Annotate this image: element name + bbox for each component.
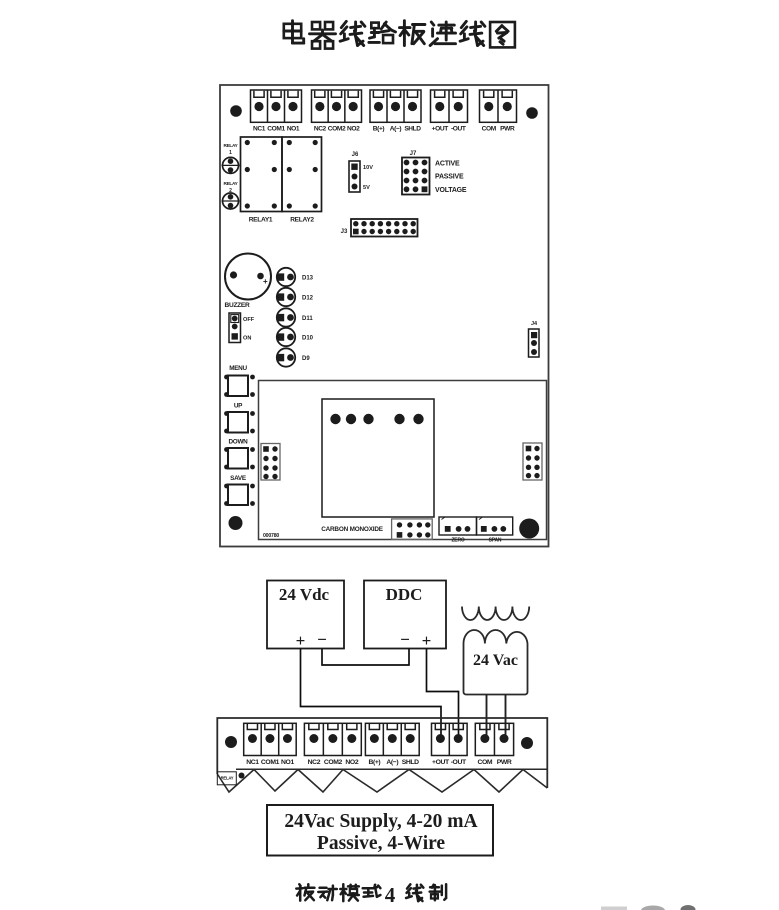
svg-text:B(+): B(+) bbox=[373, 126, 385, 133]
svg-text:NO2: NO2 bbox=[345, 759, 358, 766]
svg-text:RELAY2: RELAY2 bbox=[290, 217, 314, 224]
svg-text:SPAN: SPAN bbox=[489, 538, 502, 544]
svg-text:+OUT: +OUT bbox=[432, 126, 449, 133]
svg-text:D12: D12 bbox=[302, 296, 314, 302]
svg-text:B(+): B(+) bbox=[368, 759, 380, 766]
svg-text:24 Vac: 24 Vac bbox=[473, 652, 518, 669]
svg-text:Passive, 4-Wire: Passive, 4-Wire bbox=[317, 833, 446, 854]
svg-text:D13: D13 bbox=[302, 276, 314, 282]
svg-text:ON: ON bbox=[243, 336, 251, 342]
svg-text:−: − bbox=[400, 630, 410, 649]
svg-text:OFF: OFF bbox=[243, 317, 255, 323]
svg-text:MENU: MENU bbox=[229, 365, 247, 372]
svg-text:J6: J6 bbox=[352, 152, 359, 158]
svg-text:UP: UP bbox=[234, 403, 243, 410]
svg-text:PASSIVE: PASSIVE bbox=[435, 174, 464, 181]
svg-text:-OUT: -OUT bbox=[451, 759, 467, 766]
svg-text:PWR: PWR bbox=[497, 759, 512, 766]
svg-text:VOLTAGE: VOLTAGE bbox=[435, 187, 467, 194]
svg-text:+: + bbox=[296, 631, 306, 650]
svg-text:1: 1 bbox=[229, 150, 232, 156]
svg-text:COM1: COM1 bbox=[267, 126, 285, 133]
svg-text:SHLD: SHLD bbox=[404, 126, 421, 133]
svg-text:BUZZER: BUZZER bbox=[225, 302, 250, 309]
svg-text:−: − bbox=[317, 630, 327, 649]
svg-text:NC1: NC1 bbox=[253, 126, 266, 133]
svg-text:COM2: COM2 bbox=[328, 126, 346, 133]
svg-text:NO1: NO1 bbox=[281, 759, 294, 766]
svg-text:COM: COM bbox=[478, 759, 493, 766]
svg-text:NO2: NO2 bbox=[347, 126, 360, 133]
svg-text:A(−): A(−) bbox=[390, 126, 402, 133]
svg-text:-OUT: -OUT bbox=[451, 126, 466, 133]
svg-text:000780: 000780 bbox=[263, 533, 279, 539]
svg-text:+OUT: +OUT bbox=[432, 759, 450, 766]
svg-text:NO1: NO1 bbox=[287, 126, 300, 133]
svg-text:24 Vdc: 24 Vdc bbox=[279, 585, 330, 604]
svg-text:+: + bbox=[263, 277, 268, 286]
svg-text:RELAY1: RELAY1 bbox=[249, 217, 273, 224]
svg-text:J4: J4 bbox=[531, 321, 538, 327]
svg-text:J3: J3 bbox=[341, 229, 348, 235]
svg-text:J7: J7 bbox=[410, 151, 417, 157]
svg-text:COM2: COM2 bbox=[324, 759, 343, 766]
svg-text:5V: 5V bbox=[363, 185, 370, 191]
svg-text:D9: D9 bbox=[302, 356, 310, 362]
svg-text:SHLD: SHLD bbox=[402, 759, 419, 766]
svg-text:4: 4 bbox=[385, 883, 396, 907]
svg-text:ACTIVE: ACTIVE bbox=[435, 161, 460, 168]
svg-text:NC2: NC2 bbox=[308, 759, 321, 766]
svg-text:10V: 10V bbox=[363, 165, 373, 171]
svg-text:A(−): A(−) bbox=[386, 759, 398, 766]
svg-text:+: + bbox=[422, 631, 432, 650]
svg-text:RELAY: RELAY bbox=[224, 181, 239, 186]
svg-text:PWR: PWR bbox=[500, 126, 515, 133]
svg-text:CARBON MONOXIDE: CARBON MONOXIDE bbox=[321, 526, 384, 533]
svg-text:RELAY: RELAY bbox=[224, 143, 239, 148]
svg-text:NC1: NC1 bbox=[246, 759, 259, 766]
svg-text:DDC: DDC bbox=[386, 585, 423, 604]
svg-text:RELAY: RELAY bbox=[221, 776, 234, 781]
svg-text:SAVE: SAVE bbox=[230, 475, 247, 482]
svg-text:ZERO: ZERO bbox=[451, 538, 464, 544]
svg-text:D10: D10 bbox=[302, 336, 314, 342]
svg-text:24Vac Supply, 4-20 mA: 24Vac Supply, 4-20 mA bbox=[284, 811, 477, 832]
svg-text:NC2: NC2 bbox=[314, 126, 327, 133]
svg-text:D11: D11 bbox=[302, 316, 313, 322]
svg-text:COM1: COM1 bbox=[261, 759, 280, 766]
svg-text:COM: COM bbox=[482, 126, 497, 133]
svg-text:DOWN: DOWN bbox=[228, 439, 248, 446]
